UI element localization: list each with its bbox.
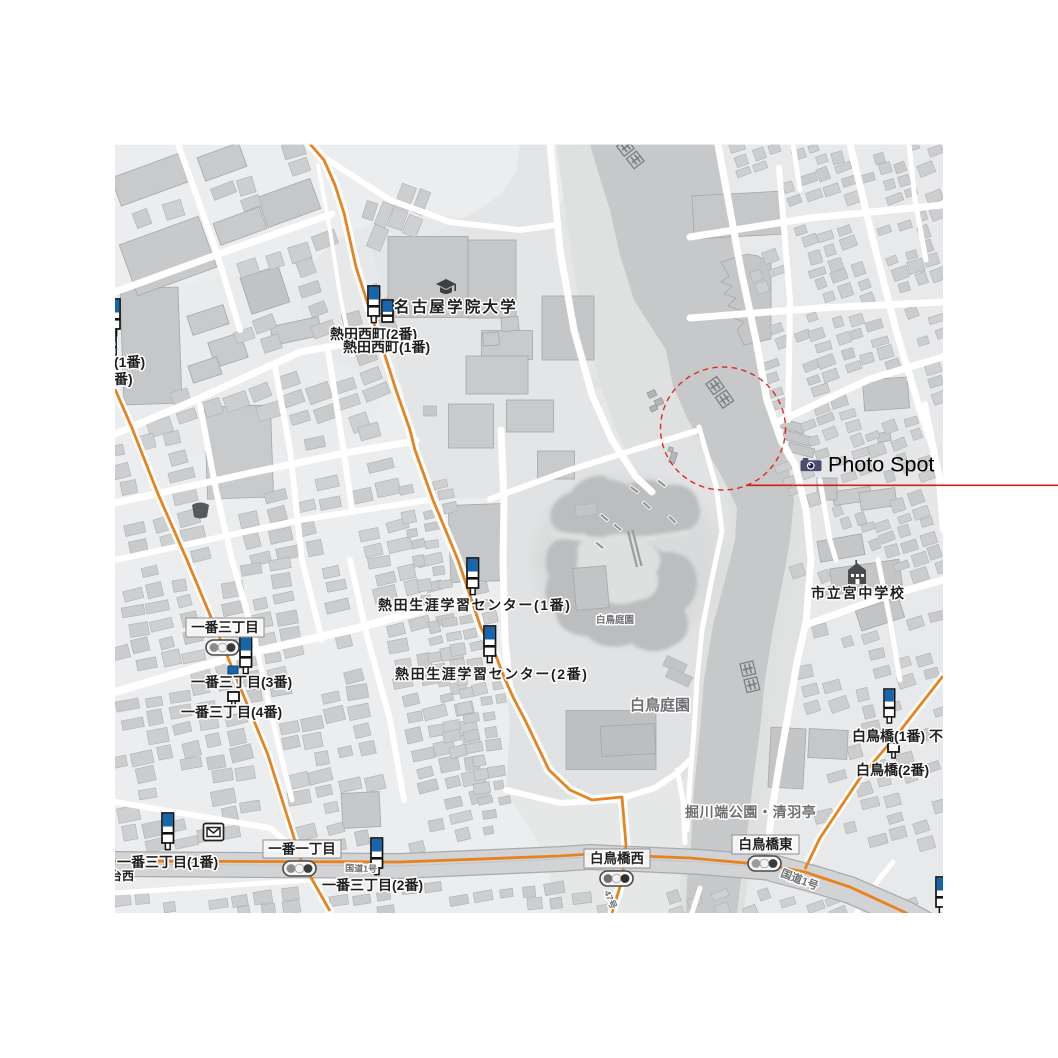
- svg-text:一番三丁目(4番): 一番三丁目(4番): [181, 704, 282, 720]
- svg-text:掘川端公園・清羽亭: 掘川端公園・清羽亭: [685, 804, 816, 820]
- svg-text:一番三丁目(3番): 一番三丁目(3番): [191, 674, 292, 690]
- svg-text:番): 番): [113, 371, 133, 387]
- svg-text:白鳥橋(1番) 不: 白鳥橋(1番) 不: [852, 728, 943, 744]
- svg-text:熱田生涯学習センター(2番): 熱田生涯学習センター(2番): [395, 666, 589, 682]
- svg-text:市立宮中学校: 市立宮中学校: [811, 585, 906, 601]
- svg-text:熱田西町(1番): 熱田西町(1番): [343, 339, 430, 355]
- svg-text:名古屋学院大学: 名古屋学院大学: [394, 297, 518, 316]
- svg-text:台西: 台西: [110, 868, 134, 883]
- svg-text:白鳥橋(2番): 白鳥橋(2番): [856, 762, 929, 778]
- svg-text:国道1号: 国道1号: [345, 862, 377, 874]
- svg-text:Photo Spot: Photo Spot: [828, 453, 934, 477]
- svg-text:(1番): (1番): [114, 354, 145, 370]
- svg-text:白鳥橋西: 白鳥橋西: [590, 850, 644, 866]
- svg-text:一番三丁目(2番): 一番三丁目(2番): [322, 877, 423, 893]
- svg-text:一番三丁目(1番): 一番三丁目(1番): [117, 854, 218, 870]
- svg-text:熱田生涯学習センター(1番): 熱田生涯学習センター(1番): [378, 597, 572, 613]
- svg-text:白鳥橋東: 白鳥橋東: [739, 836, 793, 852]
- svg-text:白鳥庭園: 白鳥庭園: [596, 614, 634, 626]
- svg-text:一番一丁目: 一番一丁目: [268, 841, 336, 857]
- svg-text:白鳥庭園: 白鳥庭園: [630, 696, 690, 714]
- svg-text:一番三丁目: 一番三丁目: [191, 619, 259, 635]
